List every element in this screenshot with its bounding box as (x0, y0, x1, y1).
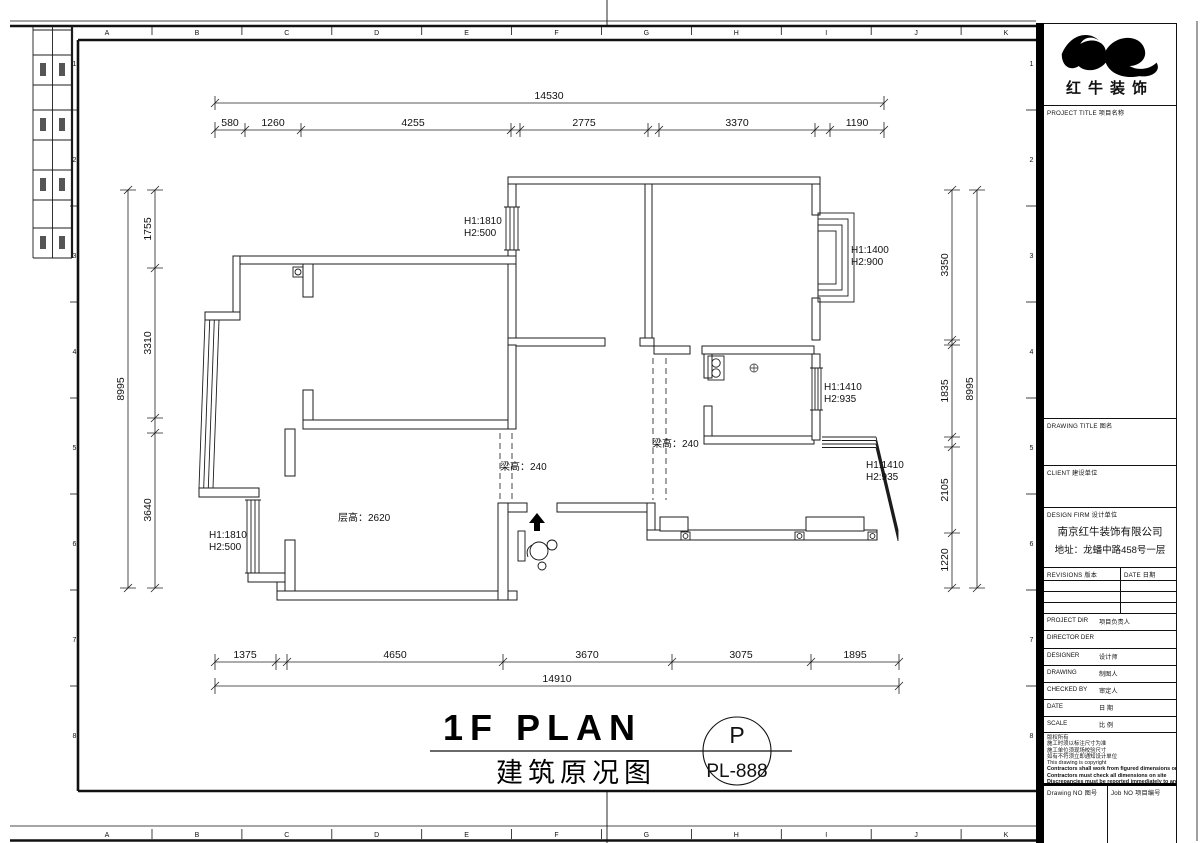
revisions-header: REVISIONS 版本 DATE 日期 (1044, 568, 1176, 581)
ruler-top: ABCDEFGHIJK (105, 27, 1009, 37)
row-label-cn: 制图人 (1099, 666, 1118, 678)
copyright-box: 版权所有 施工时须以标注尺寸为准 施工单位须现场校验尺寸 如有不符须立即通知设计… (1044, 733, 1176, 786)
ruler-mark: F (554, 30, 558, 37)
window-label: H1:1400 (851, 245, 889, 256)
row-label-cn: 设计师 (1099, 649, 1118, 661)
dim-bottom-seg: 4650 (383, 649, 407, 661)
ruler-mark: C (284, 30, 289, 37)
ruler-mark: G (644, 832, 649, 839)
ruler-mark: 2 (73, 157, 77, 164)
project-dir-row: PROJECT DIR 项目负责人 (1044, 614, 1176, 631)
dim-bottom-seg: 1375 (233, 649, 257, 661)
ceiling-target-symbol (750, 364, 758, 372)
row-label: PROJECT DIR (1044, 614, 1099, 624)
drawing-title-label: DRAWING TITLE 图名 (1044, 419, 1176, 430)
doorbell-symbol (293, 267, 303, 277)
ruler-mark: 7 (73, 637, 77, 644)
row-label: CHECKED BY (1044, 683, 1099, 693)
designer-row: DESIGNER 设计师 (1044, 649, 1176, 666)
window-label: H1:1410 (824, 382, 862, 393)
firm-address: 地址：龙蟠中路458号一层 (1044, 542, 1176, 556)
ruler-mark: 3 (1030, 253, 1034, 260)
dim-bottom-seg: 3670 (575, 649, 599, 661)
ruler-mark: 5 (73, 445, 77, 452)
ruler-mark: I (825, 832, 827, 839)
dim-right-overall: 8995 (964, 377, 976, 401)
window-label: H2:935 (824, 394, 857, 405)
director-row: DIRECTOR DER (1044, 631, 1176, 649)
ruler-mark: K (1004, 832, 1009, 839)
window-label: H2:900 (851, 257, 884, 268)
logo-box: 红牛装饰 (1044, 24, 1176, 106)
date-col-label: DATE 日期 (1121, 568, 1176, 579)
client-label: CLIENT 建设单位 (1044, 466, 1176, 477)
dim-bottom-seg: 1895 (843, 649, 867, 661)
dim-left-seg: 3640 (142, 498, 154, 522)
frame-right-bar (1036, 23, 1044, 843)
window-label: H2:500 (209, 542, 242, 553)
drawing-number-box: Drawing NO 图号 Job NO 项目编号 (1044, 786, 1176, 843)
ruler-bottom: ABCDEFGHIJK (105, 829, 1009, 839)
plan-title-en: 1F PLAN (443, 707, 642, 748)
ruler-mark: D (374, 832, 379, 839)
dim-top-seg: 1190 (846, 117, 869, 129)
dim-right-seg: 1220 (939, 548, 951, 572)
scale-row: SCALE 比 例 (1044, 717, 1176, 733)
revision-row (1044, 592, 1176, 603)
drawing-title-box: DRAWING TITLE 图名 (1044, 419, 1176, 466)
checked-by-row: CHECKED BY 审定人 (1044, 683, 1176, 700)
sheet-title: 1F PLAN 建筑原况图 P PL-888 (430, 707, 792, 788)
ruler-mark: K (1004, 30, 1009, 37)
project-title-box: PROJECT TITLE 项目名称 (1044, 106, 1176, 419)
ruler-mark: 8 (1030, 733, 1034, 740)
drawing-row: DRAWING 制图人 (1044, 666, 1176, 683)
row-label-cn: 审定人 (1099, 683, 1118, 695)
row-label: SCALE (1044, 717, 1099, 727)
window-label: H1:1410 (866, 460, 904, 471)
dim-right-seg: 2105 (939, 478, 951, 502)
ruler-mark: 6 (73, 541, 77, 548)
client-box: CLIENT 建设单位 (1044, 466, 1176, 508)
row-label-cn: 项目负责人 (1099, 614, 1130, 626)
ruler-mark: B (195, 832, 200, 839)
row-label-cn: 日 期 (1099, 700, 1113, 712)
ruler-mark: 1 (73, 61, 77, 68)
date-row: DATE 日 期 (1044, 700, 1176, 717)
title-block: 红牛装饰 PROJECT TITLE 项目名称 DRAWING TITLE 图名… (1044, 23, 1177, 843)
ruler-mark: A (105, 30, 110, 37)
firm-name: 南京红牛装饰有限公司 (1044, 524, 1176, 539)
row-label: DATE (1044, 700, 1099, 710)
ruler-mark: J (914, 832, 918, 839)
ruler-right: 12345678 (1026, 61, 1036, 740)
ruler-mark: D (374, 30, 379, 37)
dim-right-seg: 1835 (939, 379, 951, 403)
dim-top-seg: 3370 (725, 117, 749, 129)
beam-height-label: 梁高：240 (500, 460, 547, 473)
dim-right-seg: 3350 (939, 253, 951, 277)
row-label: DESIGNER (1044, 649, 1099, 659)
plan-title-cn: 建筑原况图 (496, 758, 656, 788)
dim-left-overall: 8995 (115, 377, 127, 401)
ruler-mark: E (464, 832, 469, 839)
stamp-code: PL-888 (706, 761, 767, 782)
ruler-mark: H (734, 30, 739, 37)
dim-left-seg: 3310 (142, 331, 154, 355)
ruler-mark: J (914, 30, 918, 37)
ruler-mark: C (284, 832, 289, 839)
design-firm-label: DESIGN FIRM 设计单位 (1044, 508, 1176, 519)
dim-top-overall: 14530 (534, 90, 563, 102)
beam-height-label: 梁高：240 (652, 437, 699, 450)
window-label: H2:500 (464, 228, 497, 239)
row-label-cn: 比 例 (1099, 717, 1113, 729)
design-firm-box: DESIGN FIRM 设计单位 南京红牛装饰有限公司 地址：龙蟠中路458号一… (1044, 508, 1176, 568)
copyright-line: Contractors shall work from figured dime… (1047, 766, 1176, 772)
ruler-mark: E (464, 30, 469, 37)
window-label: H1:1810 (464, 216, 502, 227)
ruler-mark: 2 (1030, 157, 1034, 164)
ruler-mark: 8 (73, 733, 77, 740)
dim-top-seg: 2775 (572, 117, 596, 129)
ruler-mark: A (105, 832, 110, 839)
revision-row (1044, 603, 1176, 614)
ruler-mark: 6 (1030, 541, 1034, 548)
dim-top-seg: 580 (221, 117, 239, 129)
row-label: DRAWING (1044, 666, 1099, 676)
revision-row (1044, 581, 1176, 592)
ruler-mark: B (195, 30, 200, 37)
project-title-label: PROJECT TITLE 项目名称 (1044, 106, 1176, 117)
logo-name: 红牛装饰 (1044, 77, 1176, 98)
left-strip-table (33, 26, 72, 258)
ruler-mark: G (644, 30, 649, 37)
ruler-mark: 3 (73, 253, 77, 260)
dim-bottom-overall: 14910 (542, 673, 571, 685)
ruler-mark: 4 (73, 349, 77, 356)
window-label: H1:1810 (209, 530, 247, 541)
revisions-label: REVISIONS 版本 (1044, 568, 1120, 579)
row-label: DIRECTOR DER (1044, 631, 1099, 641)
window-label: H2:935 (866, 472, 899, 483)
dim-top-seg: 1260 (261, 117, 285, 129)
plan-walls (199, 177, 877, 600)
floor-height-label: 层高：2620 (338, 511, 391, 524)
ruler-mark: F (554, 832, 558, 839)
ruler-mark: 4 (1030, 349, 1034, 356)
dim-bottom-seg: 3075 (729, 649, 753, 661)
job-no-label: Job NO 项目编号 (1108, 786, 1161, 797)
copyright-line: Discrepancies must be reported immediate… (1047, 779, 1176, 785)
ruler-mark: 5 (1030, 445, 1034, 452)
drawing-no-label: Drawing NO 图号 (1044, 786, 1107, 797)
floor-plan-canvas: ABCDEFGHIJK ABCDEFGHIJK 12345678 1234567… (0, 0, 1200, 843)
drawing-sheet: ABCDEFGHIJK ABCDEFGHIJK 12345678 1234567… (0, 0, 1200, 843)
person-at-entry (518, 531, 557, 570)
dim-top-seg: 4255 (401, 117, 425, 129)
ruler-mark: 7 (1030, 637, 1034, 644)
ruler-mark: H (734, 832, 739, 839)
ruler-mark: I (825, 30, 827, 37)
bay-window-top-right (818, 213, 854, 302)
bull-logo-icon (1055, 27, 1165, 77)
ruler-mark: 1 (1030, 61, 1034, 68)
stamp-letter: P (729, 722, 744, 748)
dim-left-seg: 1755 (142, 217, 154, 241)
beam-dashed-lines (500, 358, 666, 500)
entry-arrow-icon (529, 513, 545, 531)
